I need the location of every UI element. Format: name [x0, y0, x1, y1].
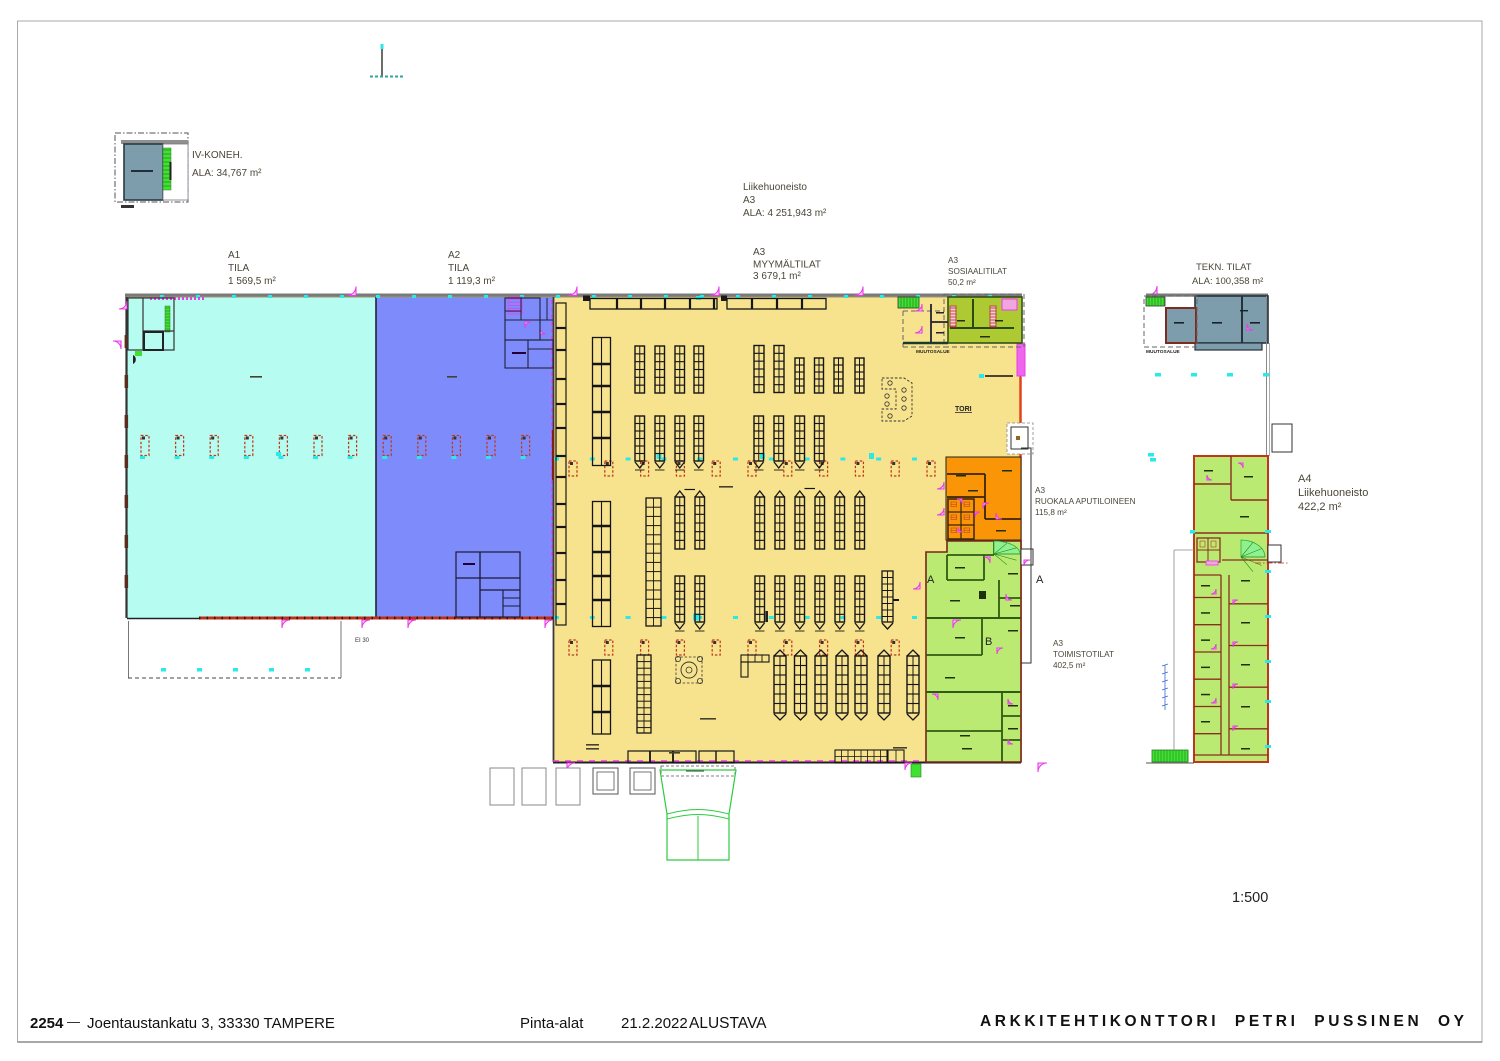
- svg-text:2254: 2254: [30, 1015, 64, 1032]
- svg-text:TILA: TILA: [228, 263, 249, 274]
- svg-text:1 119,3 m²: 1 119,3 m²: [448, 276, 496, 287]
- svg-text:TILA: TILA: [448, 263, 469, 274]
- svg-text:RUOKALA APUTILOINEEN: RUOKALA APUTILOINEEN: [1035, 497, 1136, 506]
- svg-text:A3: A3: [948, 256, 958, 265]
- svg-text:A3: A3: [743, 195, 756, 206]
- svg-text:EI 30: EI 30: [355, 638, 370, 644]
- svg-text:SOSIAALITILAT: SOSIAALITILAT: [948, 267, 1007, 276]
- svg-text:A4: A4: [1298, 473, 1311, 485]
- svg-text:A3: A3: [753, 247, 766, 258]
- svg-text:A3: A3: [1035, 486, 1045, 495]
- svg-text:A: A: [1036, 574, 1044, 586]
- svg-text:ALA: 100,358 m²: ALA: 100,358 m²: [1192, 276, 1263, 287]
- svg-text:ALA: 34,767 m²: ALA: 34,767 m²: [192, 168, 262, 179]
- svg-text:ALA: 4 251,943 m²: ALA: 4 251,943 m²: [743, 208, 827, 219]
- svg-text:MYYMÄLTILAT: MYYMÄLTILAT: [753, 259, 821, 271]
- svg-text:21.2.2022: 21.2.2022: [621, 1015, 688, 1032]
- svg-text:Joentaustankatu 3, 33330 TAMPE: Joentaustankatu 3, 33330 TAMPERE: [87, 1015, 335, 1032]
- svg-text:IV-KONEH.: IV-KONEH.: [192, 150, 243, 161]
- svg-text:50,2 m²: 50,2 m²: [948, 278, 976, 287]
- svg-text:1:500: 1:500: [1232, 890, 1268, 906]
- svg-text:A: A: [927, 574, 935, 586]
- svg-text:1 569,5 m²: 1 569,5 m²: [228, 276, 276, 287]
- svg-text:TOIMISTOTILAT: TOIMISTOTILAT: [1053, 650, 1114, 659]
- svg-text:3 679,1 m²: 3 679,1 m²: [753, 271, 801, 282]
- svg-text:Pinta-alat: Pinta-alat: [520, 1015, 584, 1032]
- svg-text:MUUTOSALUE: MUUTOSALUE: [1146, 349, 1181, 355]
- svg-text:Liikehuoneisto: Liikehuoneisto: [743, 182, 807, 193]
- svg-text:Liikehuoneisto: Liikehuoneisto: [1298, 487, 1368, 499]
- svg-text:115,8 m²: 115,8 m²: [1035, 508, 1067, 517]
- svg-text:ALUSTAVA: ALUSTAVA: [689, 1015, 767, 1032]
- svg-text:TORI: TORI: [955, 406, 972, 413]
- svg-text:422,2 m²: 422,2 m²: [1298, 501, 1342, 513]
- svg-text:—: —: [67, 1014, 80, 1029]
- svg-text:TEKN. TILAT: TEKN. TILAT: [1196, 262, 1252, 273]
- svg-text:A3: A3: [1053, 639, 1063, 648]
- svg-text:402,5 m²: 402,5 m²: [1053, 661, 1086, 670]
- svg-text:A2: A2: [448, 250, 461, 261]
- svg-text:A1: A1: [228, 250, 241, 261]
- svg-text:MUUTOSALUE: MUUTOSALUE: [916, 349, 951, 355]
- svg-text:B: B: [985, 636, 992, 648]
